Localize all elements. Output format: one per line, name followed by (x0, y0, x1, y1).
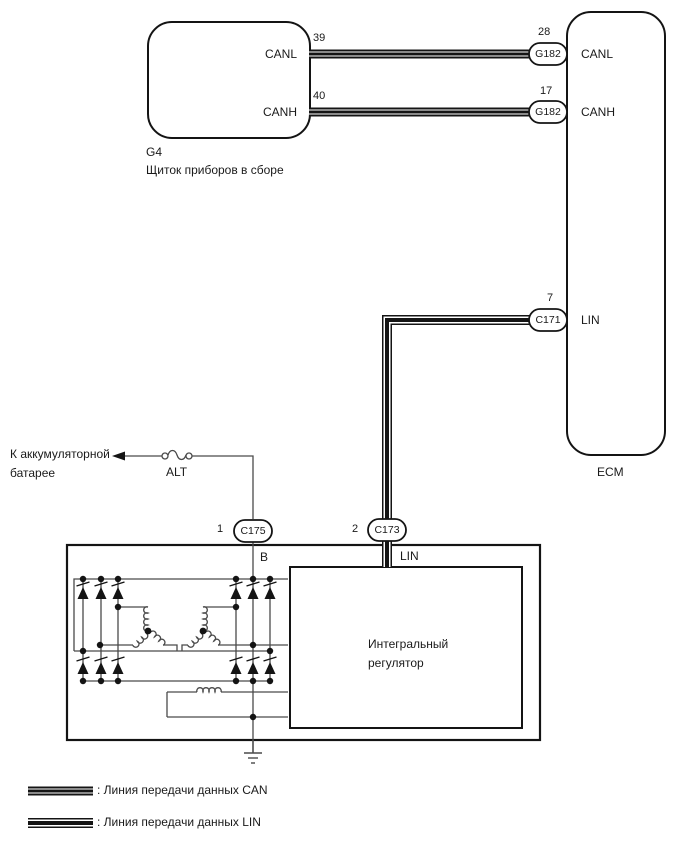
ecm-lin-label: LIN (581, 314, 600, 327)
legend-can-label: : Линия передачи данных CAN (97, 784, 268, 797)
pin-1: 1 (217, 523, 223, 536)
battery-wire (112, 451, 253, 520)
pin-40: 40 (313, 90, 325, 103)
ecm-canl-label: CANL (581, 48, 613, 61)
terminal-lin-label: LIN (400, 550, 419, 563)
battery-label-line1: К аккумуляторной (10, 448, 110, 461)
pin-39: 39 (313, 32, 325, 45)
fuse-alt-label: ALT (166, 466, 187, 479)
g4-canh-label: CANH (237, 106, 297, 119)
regulator-label-line1: Интегральный (368, 638, 448, 651)
arrow-left-icon (112, 452, 125, 461)
g4-code: G4 (146, 146, 162, 159)
ecm-canh-label: CANH (581, 106, 615, 119)
pin-7: 7 (547, 292, 553, 305)
lin-wire (387, 320, 534, 567)
ground-icon (244, 740, 262, 763)
connector-label-g182-canh: G182 (529, 106, 567, 119)
fuse-alt-icon (162, 451, 192, 460)
instrument-cluster-box (148, 22, 310, 138)
g4-canl-label: CANL (237, 48, 297, 61)
legend-lin-label: : Линия передачи данных LIN (97, 816, 261, 829)
ecm-box (567, 12, 665, 455)
connector-label-c173: C173 (368, 524, 406, 537)
connector-label-c171: C171 (529, 314, 567, 327)
battery-label-line2: батарее (10, 467, 55, 480)
pin-2: 2 (352, 523, 358, 536)
pin-28: 28 (538, 26, 550, 39)
wiring-diagram-page: CANL CANH 39 40 G4 Щиток приборов в сбор… (0, 0, 688, 852)
connector-label-g182-canl: G182 (529, 48, 567, 61)
regulator-label-line2: регулятор (368, 657, 424, 670)
terminal-b-label: B (260, 551, 268, 564)
pin-17: 17 (540, 85, 552, 98)
wiring-diagram-canvas (0, 0, 688, 852)
ecm-title: ECM (597, 466, 624, 479)
g4-title: Щиток приборов в сборе (146, 164, 284, 177)
connector-label-c175: C175 (234, 525, 272, 538)
